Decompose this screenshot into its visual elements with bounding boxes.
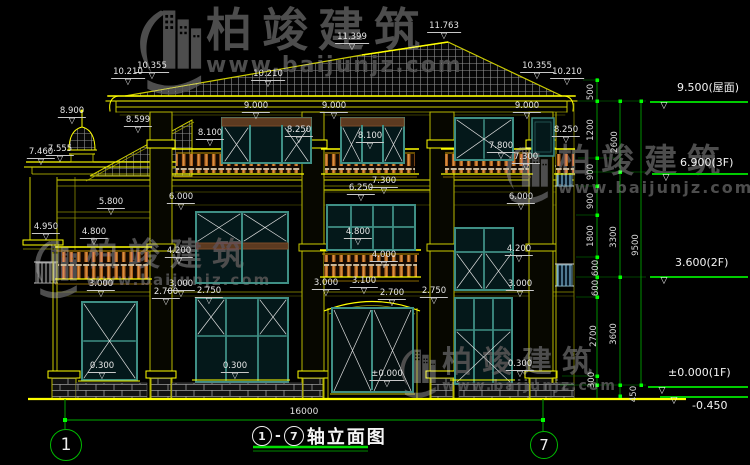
dim-triangle: ▽ [361, 287, 367, 295]
dim-triangle: ▽ [367, 142, 373, 150]
dim-triangle: ▽ [381, 261, 387, 269]
window-3f-small [532, 118, 554, 156]
dim-triangle: ▽ [323, 289, 329, 297]
dim-triangle: ▽ [358, 194, 364, 202]
overall-width-dim: 16000 [288, 407, 321, 417]
dim-triangle: ▽ [331, 112, 337, 120]
vertical-dim-label: 2600 [611, 131, 620, 153]
dim-triangle: ▽ [518, 203, 524, 211]
axis-number: 7 [539, 436, 549, 454]
dim-triangle: ▽ [389, 299, 395, 307]
dim-triangle: ▽ [125, 78, 131, 86]
level-marker-label: -0.450 [692, 399, 727, 412]
dim-triangle: ▽ [206, 297, 212, 305]
level-marker-triangle: ▽ [661, 102, 668, 111]
dim-triangle: ▽ [135, 126, 141, 134]
vertical-dim-label: 450 [630, 386, 639, 402]
dim-triangle: ▽ [99, 372, 105, 380]
dim-triangle: ▽ [349, 43, 355, 51]
window-3f-right [455, 118, 513, 160]
dim-triangle: ▽ [91, 238, 97, 246]
level-marker-triangle: ▽ [659, 387, 666, 396]
vertical-dim-label: 500 [587, 84, 596, 100]
dim-triangle: ▽ [38, 158, 44, 166]
dim-triangle: ▽ [265, 80, 271, 88]
level-marker-label: ±0.000(1F) [668, 366, 731, 379]
right-edge-wall [555, 103, 574, 399]
title-dash: - [275, 428, 281, 444]
dim-triangle: ▽ [516, 255, 522, 263]
dim-triangle: ▽ [523, 163, 529, 171]
drawing-title: 1 - 7 轴立面图 [252, 423, 387, 449]
dim-triangle: ▽ [498, 152, 504, 160]
title-text: 轴立面图 [307, 423, 387, 449]
window-2f-right [455, 228, 513, 290]
dim-triangle: ▽ [108, 208, 114, 216]
title-axis-left-circle: 1 [252, 426, 272, 446]
axis-number: 1 [61, 435, 72, 455]
dim-triangle: ▽ [176, 257, 182, 265]
vertical-dim-label: 600 [592, 280, 601, 296]
vertical-dim-label: 1800 [587, 225, 596, 247]
window-1f-right [455, 298, 512, 384]
dim-triangle: ▽ [431, 297, 437, 305]
dim-triangle: ▽ [178, 203, 184, 211]
title-axis-right-circle: 7 [284, 426, 304, 446]
dim-triangle: ▽ [564, 78, 570, 86]
corner-pedestal [48, 371, 80, 399]
vertical-dim-label: 900 [587, 193, 596, 209]
dim-triangle: ▽ [98, 290, 104, 298]
window-2f-left [196, 212, 288, 283]
dim-triangle: ▽ [563, 136, 569, 144]
right-side-balcony-rail [557, 265, 572, 286]
entrance-door [324, 302, 420, 400]
cad-elevation-screenshot: 16000 1 7 1 - 7 轴立面图 const data = JSON.p… [0, 0, 750, 465]
dim-triangle: ▽ [43, 233, 49, 241]
axis-bubble-1: 1 [50, 429, 82, 461]
dim-triangle: ▽ [384, 380, 390, 388]
level-marker-triangle: ▽ [661, 277, 668, 286]
dim-triangle: ▽ [524, 112, 530, 120]
dim-triangle: ▽ [381, 187, 387, 195]
vertical-dim-label: 900 [587, 164, 596, 180]
dim-triangle: ▽ [296, 136, 302, 144]
level-marker-label: 3.600(2F) [675, 256, 728, 269]
level-marker-triangle: ▽ [663, 174, 670, 183]
axis-bubble-7: 7 [530, 431, 558, 459]
dim-triangle: ▽ [57, 155, 63, 163]
dim-triangle: ▽ [163, 298, 169, 306]
dim-triangle: ▽ [69, 117, 75, 125]
level-marker-triangle: ▽ [671, 397, 678, 406]
dim-triangle: ▽ [253, 112, 259, 120]
vertical-dim-label: 3600 [610, 323, 619, 345]
dim-triangle: ▽ [517, 290, 523, 298]
dim-triangle: ▽ [355, 238, 361, 246]
vertical-dim-label: 3300 [610, 226, 619, 248]
level-marker-label: 6.900(3F) [680, 156, 733, 169]
dim-triangle: ▽ [149, 72, 155, 80]
vertical-dim-label: 300 [588, 372, 597, 388]
vertical-dim-label: 2700 [590, 325, 599, 347]
dim-triangle: ▽ [232, 372, 238, 380]
vertical-dim-label: 600 [592, 260, 601, 276]
dim-triangle: ▽ [441, 32, 447, 40]
level-marker-label: 9.500(屋面) [677, 79, 739, 95]
vertical-dim-label: 1200 [587, 119, 596, 141]
dim-triangle: ▽ [517, 370, 523, 378]
dim-triangle: ▽ [207, 139, 213, 147]
dim-triangle: ▽ [534, 72, 540, 80]
vertical-dim-label: 9500 [632, 234, 641, 256]
main-hip-roof [125, 42, 562, 96]
